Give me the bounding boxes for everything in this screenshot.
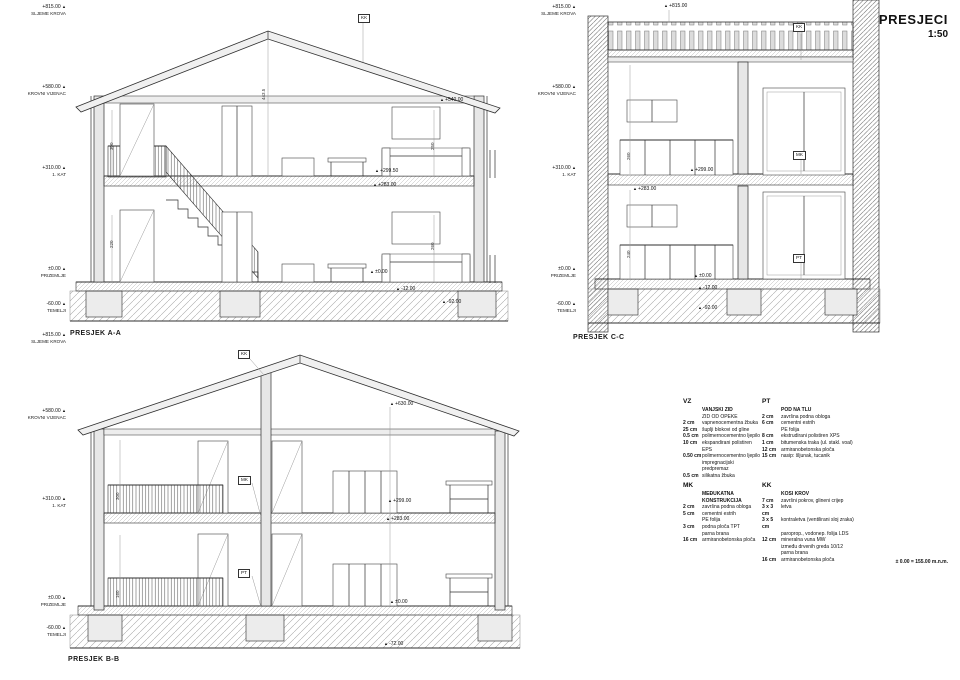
legend-row-thickness: 12 cm xyxy=(762,447,781,454)
legend-row-material: polimernocementno ljepilo xyxy=(702,433,761,440)
legend-row: parna brana xyxy=(762,550,870,557)
legend-row-material: paroprop., vodonep. folija LDS xyxy=(781,531,870,538)
legend-row-thickness xyxy=(683,407,702,414)
legend-row: 2 cmzavršna podna obloga xyxy=(683,504,761,511)
legend-row-thickness xyxy=(683,517,702,524)
legend-group-pt: PTPOD NA TLU2 cmzavršna podna obloga6 cm… xyxy=(762,398,870,460)
legend-group-mk: MKMEĐUKATNA KONSTRUKCIJA2 cmzavršna podn… xyxy=(683,482,761,544)
legend-row-thickness: 2 cm xyxy=(762,414,781,421)
legend-row-thickness: 2 cm xyxy=(683,420,702,427)
elevation-marker: ▲ -12.00 xyxy=(698,285,717,291)
legend-row: 15 cmnasip: šljunak, tucanik xyxy=(762,453,870,460)
legend-row-thickness xyxy=(683,460,702,473)
legend-row: 3 cmpodna ploča TPT xyxy=(683,524,761,531)
level-label: +580.00 ▲KROVNI VIJENAC xyxy=(4,408,66,420)
legend-row: VANJSKI ZID xyxy=(683,407,761,414)
elevation-triangle-icon: ▲ xyxy=(698,305,703,310)
kitchen-ground xyxy=(620,205,733,279)
legend-row-material: POD NA TLU xyxy=(781,407,870,414)
elevation-marker: ▲ +630.00 xyxy=(390,401,413,407)
section-bb-drawing xyxy=(0,345,530,680)
layer-ref-marker: MK xyxy=(238,476,251,485)
legend-row: 6 cmcementni estrih xyxy=(762,420,870,427)
elevation-triangle-icon: ▲ xyxy=(698,285,703,290)
legend-row-thickness xyxy=(762,544,781,551)
window-upper xyxy=(763,88,845,175)
legend-row-material: VANJSKI ZID xyxy=(702,407,761,414)
legend-row-thickness xyxy=(683,531,702,538)
legend-row-material: ekstrudirani polistiren XPS xyxy=(781,433,870,440)
elevation-triangle-icon: ▲ xyxy=(388,498,393,503)
legend-row-thickness: 10 cm xyxy=(683,440,702,453)
level-triangle-icon: ▲ xyxy=(62,408,66,413)
sheet-scale: 1:50 xyxy=(879,29,948,40)
legend-row-thickness: 25 cm xyxy=(683,427,702,434)
legend-row: 2 cmzavršna podna obloga xyxy=(762,414,870,421)
legend-row-thickness: 0.50 cm xyxy=(683,453,702,460)
elevation-marker: ▲ ±0.00 xyxy=(694,273,712,279)
level-triangle-icon: ▲ xyxy=(62,165,66,170)
legend-row-thickness xyxy=(762,550,781,557)
legend-row-material: PE folija xyxy=(781,427,870,434)
level-label: -60.00 ▲TEMELJI xyxy=(514,301,576,313)
level-triangle-icon: ▲ xyxy=(62,625,66,630)
legend-row: KOSI KROV xyxy=(762,491,870,498)
elevation-marker: ▲ -72.00 xyxy=(384,641,403,647)
elevation-marker: ▲ +283.00 xyxy=(386,516,409,522)
level-label: +580.00 ▲KROVNI VIJENAC xyxy=(4,84,66,96)
level-label: +815.00 ▲SLJEME KROVA xyxy=(514,4,576,16)
elevation-marker: ▲ ±0.00 xyxy=(390,599,408,605)
legend-group-code: VZ xyxy=(683,398,761,405)
legend-row-material: između drvenih greda 10/12 xyxy=(781,544,870,551)
level-triangle-icon: ▲ xyxy=(62,266,66,271)
legend-row-material: šuplji blokovi od gline xyxy=(702,427,761,434)
elevation-triangle-icon: ▲ xyxy=(690,167,695,172)
level-label: ±0.00 ▲PRIZEMLJE xyxy=(514,266,576,278)
legend-row: 12 cmarmiranobetonska ploča xyxy=(762,447,870,454)
legend-row-thickness xyxy=(762,491,781,498)
legend-row-thickness: 0.5 cm xyxy=(683,433,702,440)
legend-row: 5 cmcementni estrih xyxy=(683,511,761,518)
legend-group-code: KK xyxy=(762,482,870,489)
legend-row-material: nasip: šljunak, tucanik xyxy=(781,453,870,460)
dimension-label: 220 xyxy=(109,240,114,248)
elevation-triangle-icon: ▲ xyxy=(694,273,699,278)
legend-row: MEĐUKATNA KONSTRUKCIJA xyxy=(683,491,761,504)
legend-row-material: podna ploča TPT xyxy=(702,524,761,531)
legend-row-thickness: 3 x 3 cm xyxy=(762,504,781,517)
legend-row: PE folija xyxy=(683,517,761,524)
legend-row-thickness: 3 x 5 cm xyxy=(762,517,781,530)
dimension-label: 240 xyxy=(626,250,631,258)
level-label: +310.00 ▲1. KAT xyxy=(514,165,576,177)
legend-row-thickness: 2 cm xyxy=(683,504,702,511)
roof xyxy=(608,10,853,62)
level-triangle-icon: ▲ xyxy=(62,301,66,306)
elevation-triangle-icon: ▲ xyxy=(442,299,447,304)
elevation-triangle-icon: ▲ xyxy=(384,641,389,646)
dimension-label: 250 xyxy=(430,142,435,150)
legend-row-material: MEĐUKATNA KONSTRUKCIJA xyxy=(702,491,761,504)
legend-row: 0.50 cmpolimernocementno ljepilo xyxy=(683,453,761,460)
legend-row: 16 cmarmiranobetonska ploča xyxy=(683,537,761,544)
legend-row: 0.5 cmsilikatna žbuka xyxy=(683,473,761,480)
legend-row: 7 cmzavršni pokrov, glineni crijep xyxy=(762,498,870,505)
drawing-sheet: PRESJECI 1:50 PRESJEK A-A PRESJEK C-C PR… xyxy=(0,0,960,680)
legend-row-material: PE folija xyxy=(702,517,761,524)
legend-row-material: silikatna žbuka xyxy=(702,473,761,480)
legend-row: 2 cmvapnenocementna žbuka xyxy=(683,420,761,427)
datum-note: ± 0.00 = 155.00 m.n.m. xyxy=(896,559,948,565)
level-triangle-icon: ▲ xyxy=(62,595,66,600)
legend-row: PE folija xyxy=(762,427,870,434)
legend-row: 10 cmekspandirani polistiren EPS xyxy=(683,440,761,453)
legend-row-material: armiranobetonska ploča xyxy=(702,537,761,544)
legend-row-thickness: 16 cm xyxy=(762,557,781,564)
caption-presjek-aa: PRESJEK A-A xyxy=(70,330,121,337)
layer-ref-marker: KK xyxy=(358,14,370,23)
legend-row-material: kontraletva (ventilirani sloj zraka) xyxy=(781,517,870,530)
elevation-triangle-icon: ▲ xyxy=(396,286,401,291)
legend-row: parna brana xyxy=(683,531,761,538)
legend-row-material: letva xyxy=(781,504,870,517)
layer-ref-marker: PT xyxy=(238,569,250,578)
legend-row-material: parna brana xyxy=(781,550,870,557)
dimension-label: 160 xyxy=(115,590,120,598)
sheet-title-block: PRESJECI 1:50 xyxy=(879,12,948,40)
elevation-marker: ▲ +815.00 xyxy=(664,3,687,9)
elevation-marker: ▲ +299.50 xyxy=(375,168,398,174)
roof xyxy=(78,355,519,436)
level-triangle-icon: ▲ xyxy=(62,332,66,337)
legend-row-thickness: 16 cm xyxy=(683,537,702,544)
dimension-label: 260 xyxy=(626,152,631,160)
legend-group-code: PT xyxy=(762,398,870,405)
legend-row: 1 cmbitumenska traka (ul. stakl. voal) xyxy=(762,440,870,447)
legend-row: 3 x 5 cmkontraletva (ventilirani sloj zr… xyxy=(762,517,870,530)
legend-row-thickness xyxy=(762,407,781,414)
caption-presjek-cc: PRESJEK C-C xyxy=(573,334,624,341)
legend-row-material: završna podna obloga xyxy=(781,414,870,421)
legend-row-material: armiranobetonska ploča xyxy=(781,557,870,564)
dimension-label: 443.5 xyxy=(261,89,266,100)
elevation-marker: ▲ ±0.00 xyxy=(370,269,388,275)
legend-row-material: završni pokrov, glineni crijep xyxy=(781,498,870,505)
legend-row-thickness: 5 cm xyxy=(683,511,702,518)
legend-row-thickness xyxy=(762,427,781,434)
legend-row: 12 cmmineralna vuna MW xyxy=(762,537,870,544)
furniture-ground xyxy=(222,212,495,283)
level-label: ±0.00 ▲PRIZEMLJE xyxy=(4,595,66,607)
legend-row: POD NA TLU xyxy=(762,407,870,414)
legend-row-material: bitumenska traka (ul. stakl. voal) xyxy=(781,440,870,447)
legend-row: između drvenih greda 10/12 xyxy=(762,544,870,551)
layer-ref-marker: PT xyxy=(793,254,805,263)
legend-row: 0.5 cmpolimernocementno ljepilo xyxy=(683,433,761,440)
layer-ref-marker: KK xyxy=(238,350,250,359)
legend-row-thickness: 3 cm xyxy=(683,524,702,531)
elevation-marker: ▲ -12.00 xyxy=(396,286,415,292)
legend-row: 8 cmekstrudirani polistiren XPS xyxy=(762,433,870,440)
kitchen-upper xyxy=(620,100,733,175)
level-label: -60.00 ▲TEMELJI xyxy=(4,625,66,637)
legend-row-thickness xyxy=(762,531,781,538)
elevation-marker: ▲ +299.00 xyxy=(388,498,411,504)
legend-row-material: ekspandirani polistiren EPS xyxy=(702,440,761,453)
level-triangle-icon: ▲ xyxy=(572,301,576,306)
level-triangle-icon: ▲ xyxy=(572,266,576,271)
legend-row: 3 x 3 cmletva xyxy=(762,504,870,517)
level-triangle-icon: ▲ xyxy=(62,84,66,89)
elevation-triangle-icon: ▲ xyxy=(390,599,395,604)
legend-row-thickness: 6 cm xyxy=(762,420,781,427)
dimension-label: 300 xyxy=(115,492,120,500)
elevation-triangle-icon: ▲ xyxy=(373,182,378,187)
dimension-label: 260 xyxy=(430,242,435,250)
legend-row-material: mineralna vuna MW xyxy=(781,537,870,544)
legend-row-thickness: 7 cm xyxy=(762,498,781,505)
elevation-triangle-icon: ▲ xyxy=(440,97,445,102)
legend-row-material: polimernocementno ljepilo xyxy=(702,453,761,460)
legend-row-material: vapnenocementna žbuka xyxy=(702,420,761,427)
legend-group-kk: KKKOSI KROV7 cmzavršni pokrov, glineni c… xyxy=(762,482,870,564)
legend-group-vz: VZVANJSKI ZIDZID OD OPEKE2 cmvapnenoceme… xyxy=(683,398,761,480)
level-label: ±0.00 ▲PRIZEMLJE xyxy=(4,266,66,278)
elevation-marker: ▲ -92.00 xyxy=(698,305,717,311)
level-triangle-icon: ▲ xyxy=(572,4,576,9)
legend-row-thickness: 8 cm xyxy=(762,433,781,440)
elevation-triangle-icon: ▲ xyxy=(375,168,380,173)
section-aa-drawing xyxy=(0,0,530,345)
legend-row-thickness: 15 cm xyxy=(762,453,781,460)
legend-row-material: armiranobetonska ploča xyxy=(781,447,870,454)
level-triangle-icon: ▲ xyxy=(572,165,576,170)
legend-row-material: ZID OD OPEKE xyxy=(702,414,761,421)
level-triangle-icon: ▲ xyxy=(62,4,66,9)
elevation-marker: ▲ +283.00 xyxy=(633,186,656,192)
legend-row-thickness: 0.5 cm xyxy=(683,473,702,480)
sheet-title: PRESJECI xyxy=(879,12,948,27)
foundation xyxy=(588,279,880,323)
legend-row-thickness xyxy=(683,414,702,421)
level-label: +310.00 ▲1. KAT xyxy=(4,496,66,508)
level-label: +815.00 ▲SLJEME KROVA xyxy=(4,4,66,16)
level-triangle-icon: ▲ xyxy=(572,84,576,89)
dimension-label: 300 xyxy=(109,142,114,150)
legend-row-material: parna brana xyxy=(702,531,761,538)
elevation-marker: ▲ +299.00 xyxy=(690,167,713,173)
legend-row: impregnacijski predpremaz xyxy=(683,460,761,473)
legend-row-thickness: 1 cm xyxy=(762,440,781,447)
level-label: +815.00 ▲SLJEME KROVA xyxy=(4,332,66,344)
elevation-marker: ▲ +283.00 xyxy=(373,182,396,188)
furniture-upper xyxy=(222,106,495,178)
elevation-marker: ▲ +540.00 xyxy=(440,97,463,103)
level-label: +580.00 ▲KROVNI VIJENAC xyxy=(514,84,576,96)
legend-row-thickness xyxy=(683,491,702,504)
legend-row-thickness: 12 cm xyxy=(762,537,781,544)
level-label: -60.00 ▲TEMELJI xyxy=(4,301,66,313)
legend-row: paroprop., vodonep. folija LDS xyxy=(762,531,870,538)
layer-ref-marker: MK xyxy=(793,151,806,160)
legend-group-code: MK xyxy=(683,482,761,489)
elevation-triangle-icon: ▲ xyxy=(390,401,395,406)
window-ground xyxy=(763,192,845,279)
elevation-triangle-icon: ▲ xyxy=(664,3,669,8)
legend-row-material: KOSI KROV xyxy=(781,491,870,498)
foundation xyxy=(70,606,520,648)
legend-row: ZID OD OPEKE xyxy=(683,414,761,421)
legend-row-material: impregnacijski predpremaz xyxy=(702,460,761,473)
legend-row-material: cementni estrih xyxy=(781,420,870,427)
elevation-triangle-icon: ▲ xyxy=(370,269,375,274)
legend-row-material: završna podna obloga xyxy=(702,504,761,511)
legend-row: 16 cmarmiranobetonska ploča xyxy=(762,557,870,564)
elevation-marker: ▲ -92.00 xyxy=(442,299,461,305)
level-label: +310.00 ▲1. KAT xyxy=(4,165,66,177)
layer-ref-marker: KK xyxy=(793,23,805,32)
legend-row-material: cementni estrih xyxy=(702,511,761,518)
caption-presjek-bb: PRESJEK B-B xyxy=(68,656,119,663)
elevation-triangle-icon: ▲ xyxy=(633,186,638,191)
legend-row: 25 cmšuplji blokovi od gline xyxy=(683,427,761,434)
elevation-triangle-icon: ▲ xyxy=(386,516,391,521)
level-triangle-icon: ▲ xyxy=(62,496,66,501)
